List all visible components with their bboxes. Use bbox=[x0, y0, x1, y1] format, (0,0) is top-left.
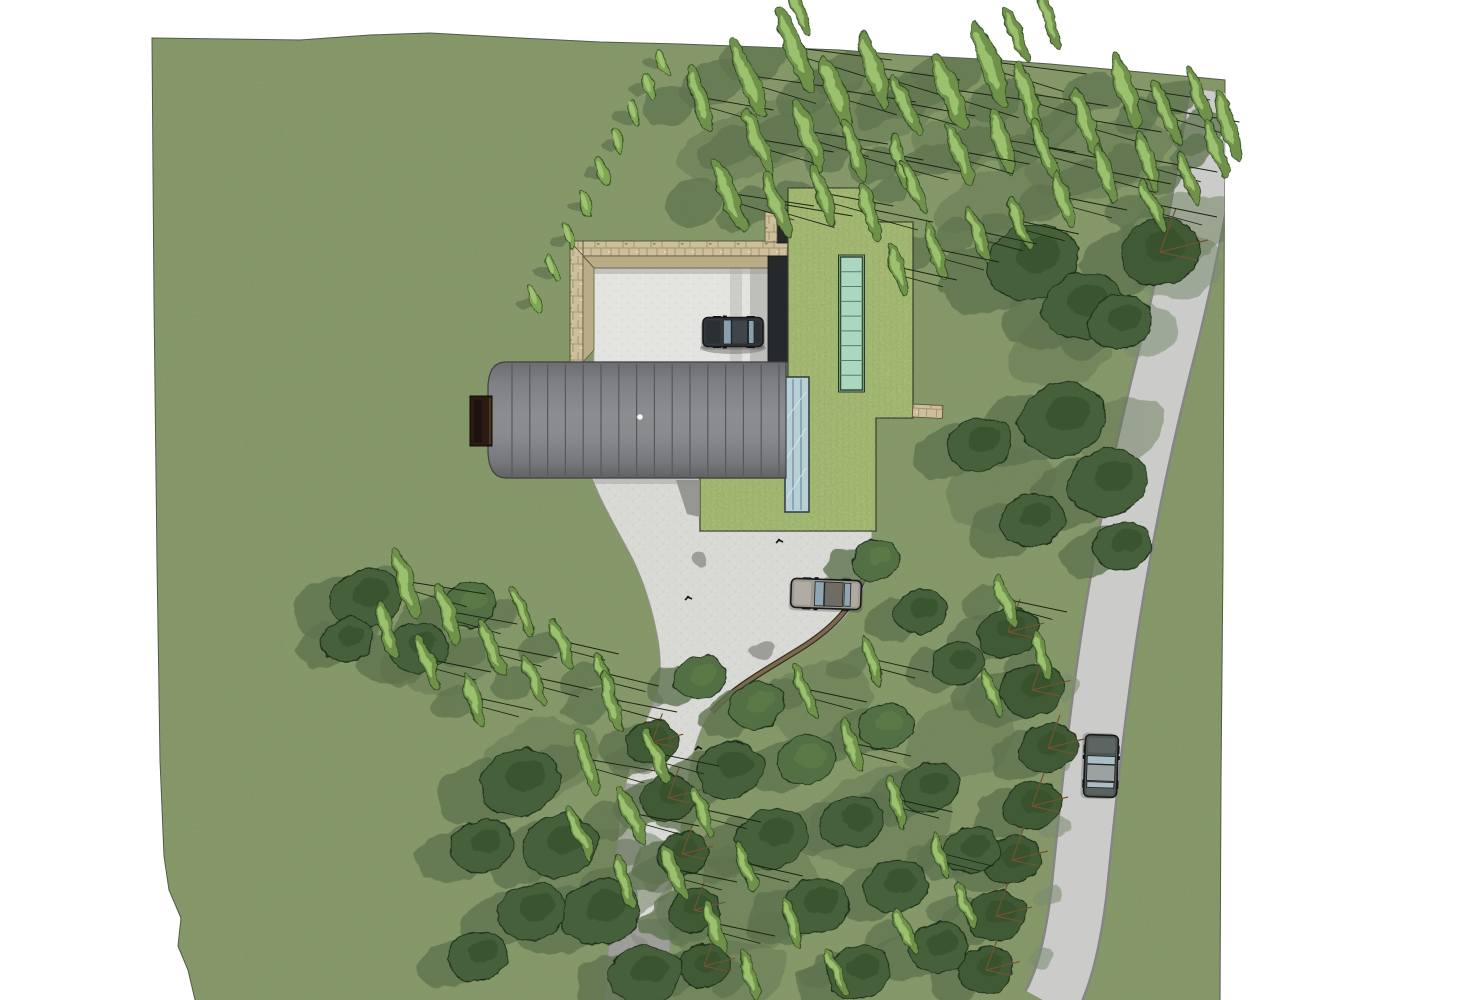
mirror bbox=[723, 347, 727, 349]
rear-window bbox=[1087, 782, 1114, 789]
stone-wall-top-face bbox=[582, 256, 780, 268]
stone-wall-left bbox=[570, 241, 583, 362]
stone-spur bbox=[912, 404, 943, 419]
rear-window bbox=[749, 321, 754, 344]
car-driveway bbox=[788, 576, 863, 613]
figure-head bbox=[687, 596, 690, 599]
mirror bbox=[814, 608, 818, 610]
pavement-shadow bbox=[750, 639, 774, 657]
car-trunk bbox=[1087, 788, 1114, 795]
windshield bbox=[1087, 756, 1115, 765]
tree-conifer bbox=[998, 4, 1034, 64]
car-hood bbox=[706, 321, 720, 344]
car-roof bbox=[732, 320, 748, 344]
skylight-roof bbox=[841, 257, 863, 390]
figure-head bbox=[697, 746, 700, 749]
windshield bbox=[814, 582, 824, 606]
car-hood bbox=[1088, 738, 1116, 754]
car-courtyard bbox=[701, 316, 765, 350]
site-plan-stage bbox=[0, 0, 1482, 1000]
mirror bbox=[815, 577, 819, 579]
site-plan-canvas bbox=[0, 0, 1482, 1000]
figure-head bbox=[778, 539, 781, 542]
car-hood bbox=[794, 581, 812, 605]
car-roof bbox=[1086, 764, 1115, 781]
car-trunk bbox=[755, 321, 761, 344]
stone-wall-left-face bbox=[583, 256, 594, 362]
dark-wall bbox=[768, 256, 790, 362]
rear-window bbox=[844, 583, 851, 606]
car-road bbox=[1080, 732, 1120, 799]
car-roof bbox=[824, 582, 843, 607]
mirror bbox=[723, 316, 727, 318]
roof-vent bbox=[637, 414, 643, 420]
stone-wall-top bbox=[570, 241, 792, 256]
windshield bbox=[723, 320, 731, 344]
pavement-shadow bbox=[690, 553, 710, 568]
chimney-inner bbox=[474, 400, 482, 442]
tree-conifer bbox=[1036, 0, 1064, 52]
skylight-link bbox=[785, 377, 809, 512]
car-trunk bbox=[851, 583, 859, 606]
mirror bbox=[1083, 755, 1085, 759]
mirror bbox=[1118, 756, 1120, 760]
